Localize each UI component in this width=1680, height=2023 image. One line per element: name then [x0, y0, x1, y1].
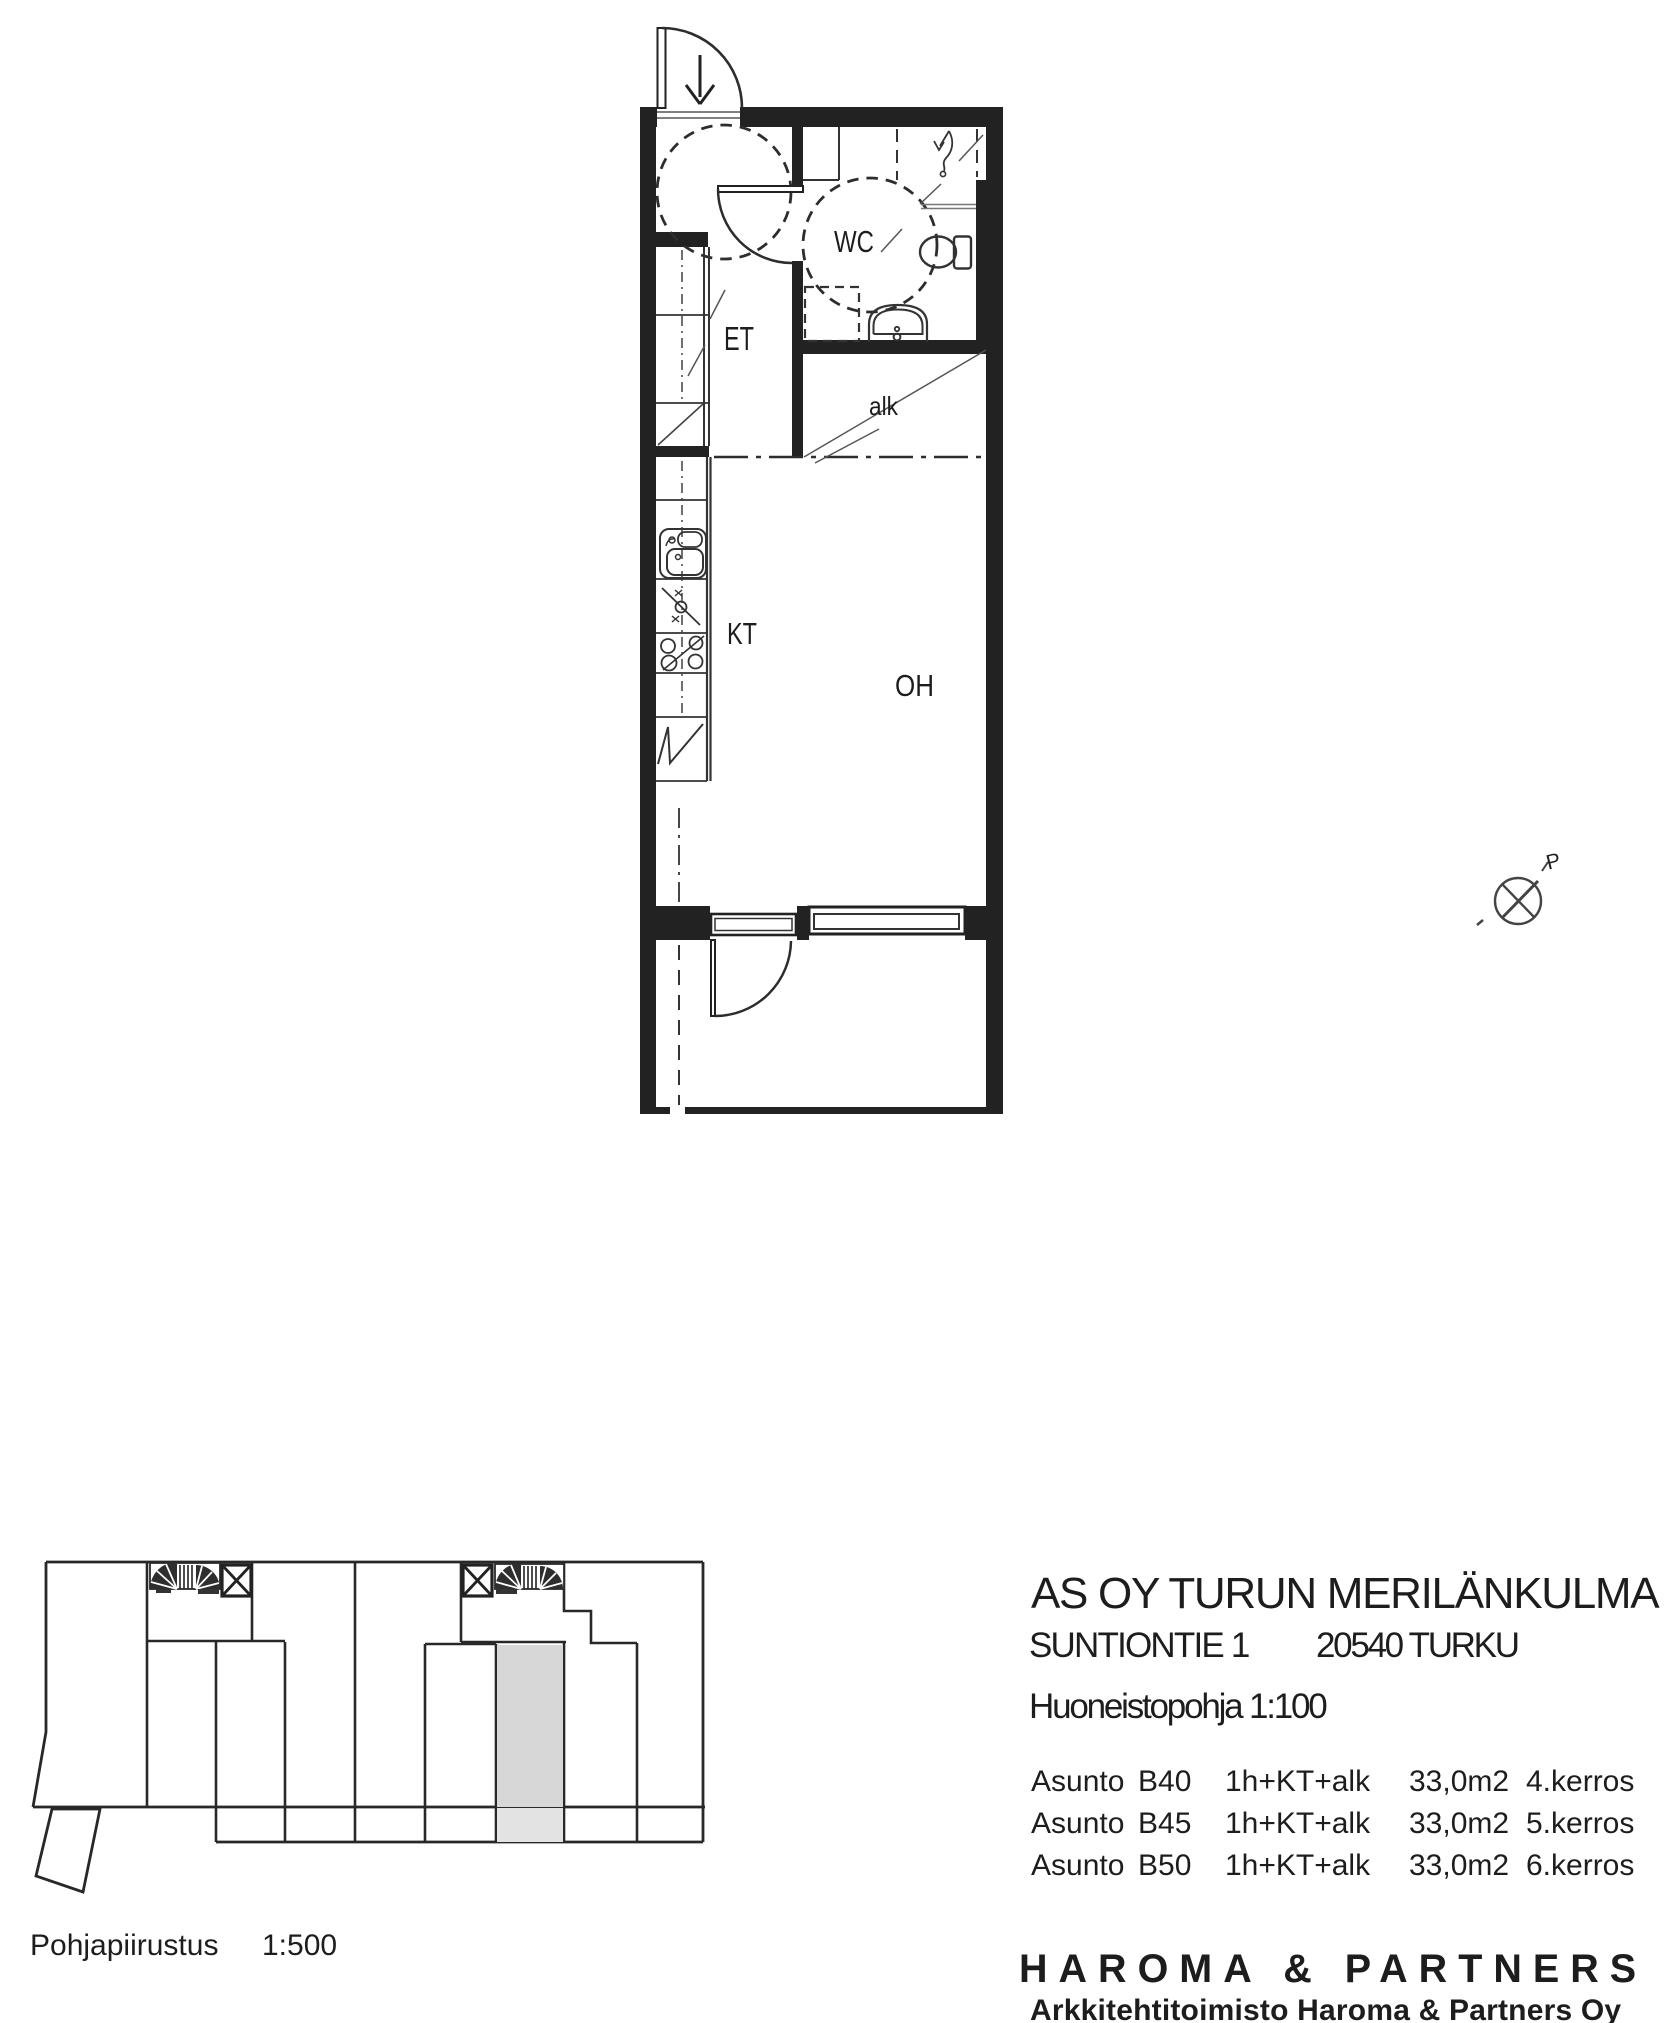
svg-text:1h+KT+alk: 1h+KT+alk	[1225, 1765, 1371, 1798]
svg-text:Arkkitehtitoimisto Haroma & Pa: Arkkitehtitoimisto Haroma & Partners Oy	[1030, 1994, 1621, 2023]
svg-text:1:500: 1:500	[262, 1929, 337, 1962]
svg-text:AS OY TURUN MERILÄNKULMA: AS OY TURUN MERILÄNKULMA	[1031, 1569, 1660, 1618]
svg-text:6.kerros: 6.kerros	[1526, 1849, 1634, 1882]
svg-text:OH: OH	[895, 668, 934, 703]
svg-text:Asunto: Asunto	[1031, 1849, 1124, 1882]
svg-text:B45: B45	[1138, 1807, 1191, 1840]
svg-text:ET: ET	[724, 320, 754, 357]
svg-text:P: P	[1544, 849, 1563, 875]
svg-text:33,0m2: 33,0m2	[1409, 1807, 1509, 1840]
svg-text:HAROMA & PARTNERS: HAROMA & PARTNERS	[1019, 1947, 1647, 1991]
svg-text:1h+KT+alk: 1h+KT+alk	[1225, 1807, 1371, 1840]
svg-text:B50: B50	[1138, 1849, 1191, 1882]
svg-text:33,0m2: 33,0m2	[1409, 1849, 1509, 1882]
svg-text:Huoneistopohja 1:100: Huoneistopohja 1:100	[1029, 1687, 1327, 1726]
svg-text:SUNTIONTIE 1: SUNTIONTIE 1	[1029, 1626, 1249, 1665]
svg-text:B40: B40	[1138, 1765, 1191, 1798]
svg-text:5.kerros: 5.kerros	[1526, 1807, 1634, 1840]
svg-text:KT: KT	[727, 616, 757, 651]
svg-text:4.kerros: 4.kerros	[1526, 1765, 1634, 1798]
svg-text:33,0m2: 33,0m2	[1409, 1765, 1509, 1798]
svg-text:Pohjapiirustus: Pohjapiirustus	[30, 1929, 218, 1962]
svg-text:WC: WC	[834, 224, 874, 259]
svg-text:20540 TURKU: 20540 TURKU	[1316, 1626, 1518, 1665]
svg-text:1h+KT+alk: 1h+KT+alk	[1225, 1849, 1371, 1882]
svg-text:Asunto: Asunto	[1031, 1807, 1124, 1840]
svg-text:Asunto: Asunto	[1031, 1765, 1124, 1798]
svg-text:alk: alk	[869, 391, 899, 421]
